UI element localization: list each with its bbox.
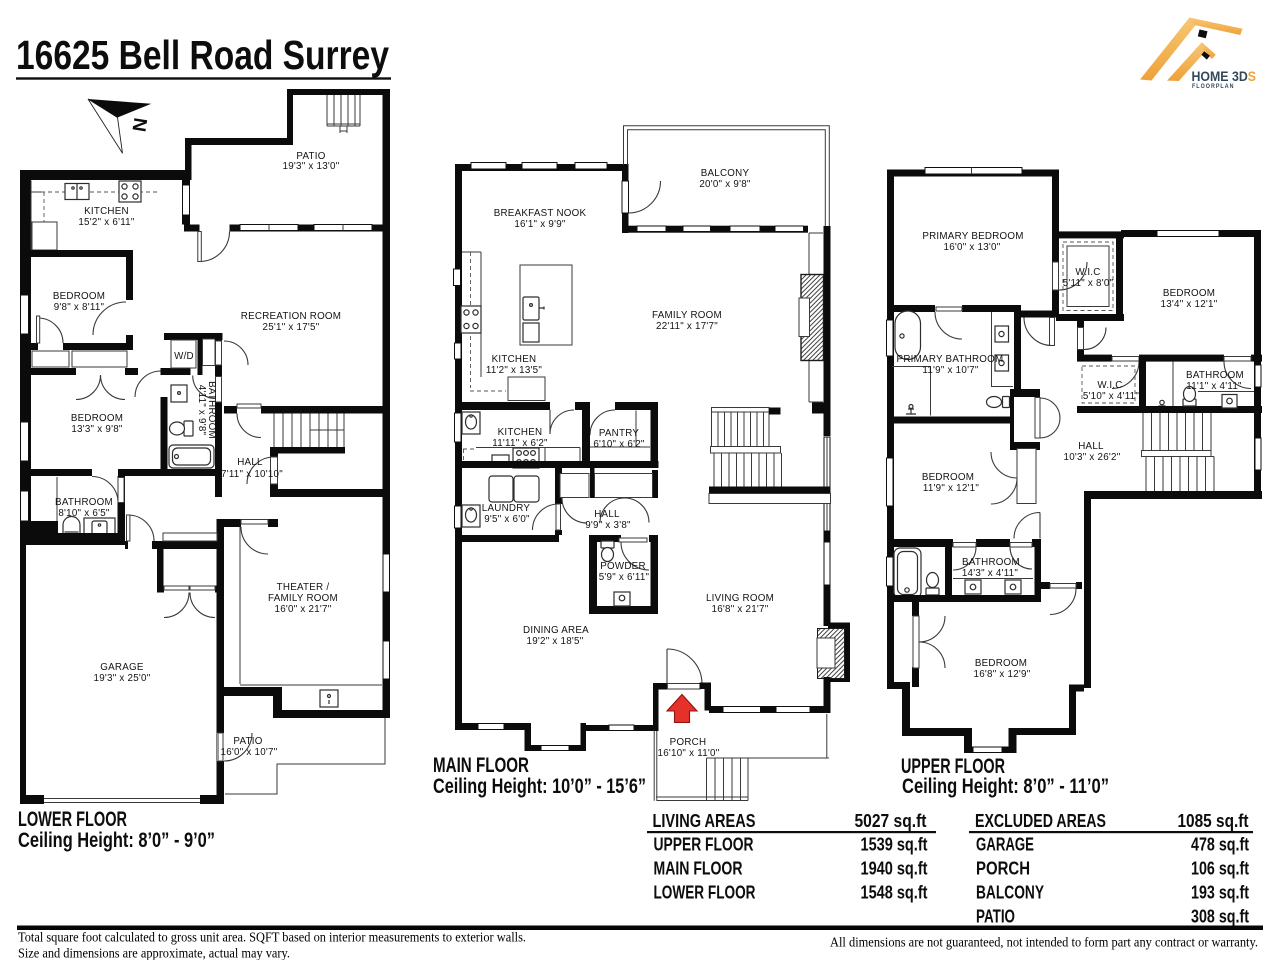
- svg-text:1548 sq.ft: 1548 sq.ft: [861, 882, 928, 903]
- svg-text:MAIN FLOOR: MAIN FLOOR: [654, 858, 743, 879]
- svg-text:BALCONY: BALCONY: [701, 168, 750, 179]
- svg-text:106 sq.ft: 106 sq.ft: [1191, 858, 1249, 879]
- svg-text:FLOORPLAN: FLOORPLAN: [1192, 83, 1235, 90]
- svg-text:6'10" x 6'2": 6'10" x 6'2": [593, 439, 645, 450]
- svg-text:11'11" x 6'2": 11'11" x 6'2": [492, 438, 548, 449]
- svg-text:KITCHEN: KITCHEN: [498, 427, 543, 438]
- svg-text:11'1" x 4'11": 11'1" x 4'11": [1186, 381, 1242, 392]
- svg-text:EXCLUDED AREAS: EXCLUDED AREAS: [975, 810, 1106, 831]
- svg-text:16'1" x 9'9": 16'1" x 9'9": [514, 219, 566, 230]
- svg-text:BATHROOM: BATHROOM: [962, 557, 1020, 568]
- svg-text:RECREATION ROOM: RECREATION ROOM: [241, 311, 341, 322]
- svg-text:25'1" x 17'5": 25'1" x 17'5": [263, 322, 320, 333]
- svg-text:7'11" x 10'10": 7'11" x 10'10": [221, 469, 283, 480]
- svg-text:5027 sq.ft: 5027 sq.ft: [855, 810, 927, 831]
- svg-text:FAMILY ROOM: FAMILY ROOM: [652, 310, 722, 321]
- svg-text:Ceiling Height: 8’0” - 9’0”: Ceiling Height: 8’0” - 9’0”: [18, 829, 215, 852]
- svg-text:16'0" x 21'7": 16'0" x 21'7": [275, 604, 332, 615]
- svg-text:PORCH: PORCH: [976, 858, 1030, 879]
- svg-text:KITCHEN: KITCHEN: [84, 206, 129, 217]
- svg-text:1539 sq.ft: 1539 sq.ft: [861, 834, 928, 855]
- svg-text:478 sq.ft: 478 sq.ft: [1191, 834, 1249, 855]
- svg-text:Total square foot calculated t: Total square foot calculated to gross un…: [18, 930, 526, 945]
- svg-text:FAMILY ROOM: FAMILY ROOM: [268, 593, 338, 604]
- svg-text:14'3" x 4'11": 14'3" x 4'11": [962, 568, 1019, 579]
- svg-text:All dimensions are not guarant: All dimensions are not guaranteed, not i…: [830, 935, 1258, 950]
- svg-text:BEDROOM: BEDROOM: [1163, 288, 1215, 299]
- svg-text:Size and dimensions are approx: Size and dimensions are approximate, act…: [18, 946, 290, 960]
- svg-text:PRIMARY BEDROOM: PRIMARY BEDROOM: [922, 231, 1023, 242]
- svg-text:POWDER: POWDER: [600, 561, 646, 572]
- svg-text:BATHROOM: BATHROOM: [55, 497, 113, 508]
- svg-text:4'11" x 9'8": 4'11" x 9'8": [196, 385, 207, 436]
- svg-text:THEATER /: THEATER /: [277, 582, 330, 593]
- svg-text:11'2" x 13'5": 11'2" x 13'5": [486, 365, 543, 376]
- svg-text:BEDROOM: BEDROOM: [71, 413, 123, 424]
- svg-text:11'9" x 10'7": 11'9" x 10'7": [922, 365, 979, 376]
- svg-text:PATIO: PATIO: [976, 906, 1015, 927]
- svg-text:HOME 3DS: HOME 3DS: [1192, 69, 1257, 84]
- svg-text:BREAKFAST NOOK: BREAKFAST NOOK: [494, 208, 587, 219]
- svg-text:1940 sq.ft: 1940 sq.ft: [861, 858, 928, 879]
- svg-text:UPPER FLOOR: UPPER FLOOR: [654, 834, 754, 855]
- svg-text:MAIN FLOOR: MAIN FLOOR: [433, 754, 529, 777]
- svg-text:5'10" x 4'11": 5'10" x 4'11": [1083, 391, 1140, 402]
- svg-text:16625 Bell Road Surrey: 16625 Bell Road Surrey: [16, 32, 389, 78]
- svg-text:W.I.C: W.I.C: [1075, 267, 1100, 278]
- svg-text:5'11" x 8'0": 5'11" x 8'0": [1063, 278, 1114, 289]
- svg-text:Ceiling Height: 8’0” - 11’0”: Ceiling Height: 8’0” - 11’0”: [902, 775, 1109, 798]
- svg-text:DINING AREA: DINING AREA: [523, 625, 589, 636]
- svg-text:8'10" x 6'5": 8'10" x 6'5": [58, 508, 110, 519]
- svg-text:5'9" x 6'11": 5'9" x 6'11": [599, 572, 650, 583]
- svg-text:19'2" x 18'5": 19'2" x 18'5": [527, 636, 584, 647]
- svg-text:11'9" x 12'1": 11'9" x 12'1": [923, 483, 980, 494]
- svg-text:15'2" x 6'11": 15'2" x 6'11": [78, 217, 135, 228]
- svg-text:BEDROOM: BEDROOM: [53, 291, 105, 302]
- svg-text:10'3" x 26'2": 10'3" x 26'2": [1064, 452, 1121, 463]
- svg-text:PATIO: PATIO: [233, 736, 262, 747]
- svg-text:1085 sq.ft: 1085 sq.ft: [1178, 810, 1249, 831]
- svg-text:PORCH: PORCH: [670, 737, 707, 748]
- svg-text:308 sq.ft: 308 sq.ft: [1191, 906, 1249, 927]
- svg-text:LOWER FLOOR: LOWER FLOOR: [654, 882, 756, 903]
- svg-text:HALL: HALL: [594, 509, 620, 520]
- svg-text:LIVING AREAS: LIVING AREAS: [653, 810, 756, 831]
- svg-text:16'0" x 13'0": 16'0" x 13'0": [944, 242, 1001, 253]
- svg-text:19'3" x 13'0": 19'3" x 13'0": [283, 161, 340, 172]
- svg-text:GARAGE: GARAGE: [100, 662, 144, 673]
- svg-text:BEDROOM: BEDROOM: [975, 658, 1027, 669]
- svg-text:HALL: HALL: [1078, 441, 1104, 452]
- svg-text:LIVING ROOM: LIVING ROOM: [706, 593, 774, 604]
- svg-text:16'8" x 12'9": 16'8" x 12'9": [974, 669, 1031, 680]
- svg-text:16'10" x 11'0": 16'10" x 11'0": [658, 748, 720, 759]
- svg-text:13'4" x 12'1": 13'4" x 12'1": [1161, 299, 1218, 310]
- svg-text:BATHROOM: BATHROOM: [1186, 370, 1244, 381]
- svg-text:13'3" x 9'8": 13'3" x 9'8": [71, 424, 123, 435]
- svg-text:193 sq.ft: 193 sq.ft: [1191, 882, 1249, 903]
- svg-text:HALL: HALL: [237, 457, 263, 468]
- svg-text:19'3" x 25'0": 19'3" x 25'0": [94, 673, 151, 684]
- svg-text:BEDROOM: BEDROOM: [922, 472, 974, 483]
- svg-text:PANTRY: PANTRY: [599, 428, 640, 439]
- svg-text:Ceiling Height: 10’0” - 15’6”: Ceiling Height: 10’0” - 15’6”: [433, 775, 646, 798]
- svg-text:16'0" x 10'7": 16'0" x 10'7": [221, 747, 278, 758]
- svg-text:PRIMARY BATHROOM: PRIMARY BATHROOM: [897, 354, 1004, 365]
- svg-text:GARAGE: GARAGE: [976, 834, 1034, 855]
- svg-text:BALCONY: BALCONY: [976, 882, 1044, 903]
- svg-text:KITCHEN: KITCHEN: [492, 354, 537, 365]
- svg-text:22'11" x 17'7": 22'11" x 17'7": [656, 321, 718, 332]
- svg-text:20'0" x 9'8": 20'0" x 9'8": [699, 179, 751, 190]
- svg-text:LOWER FLOOR: LOWER FLOOR: [18, 808, 127, 831]
- svg-text:LAUNDRY: LAUNDRY: [482, 503, 531, 514]
- svg-text:16'8" x 21'7": 16'8" x 21'7": [712, 604, 769, 615]
- svg-text:9'9" x 3'8": 9'9" x 3'8": [585, 520, 631, 531]
- svg-text:9'5" x 6'0": 9'5" x 6'0": [484, 514, 530, 525]
- svg-text:W.I.C: W.I.C: [1097, 380, 1122, 391]
- svg-text:W/D: W/D: [174, 351, 194, 362]
- svg-text:9'8" x 8'11": 9'8" x 8'11": [54, 302, 105, 313]
